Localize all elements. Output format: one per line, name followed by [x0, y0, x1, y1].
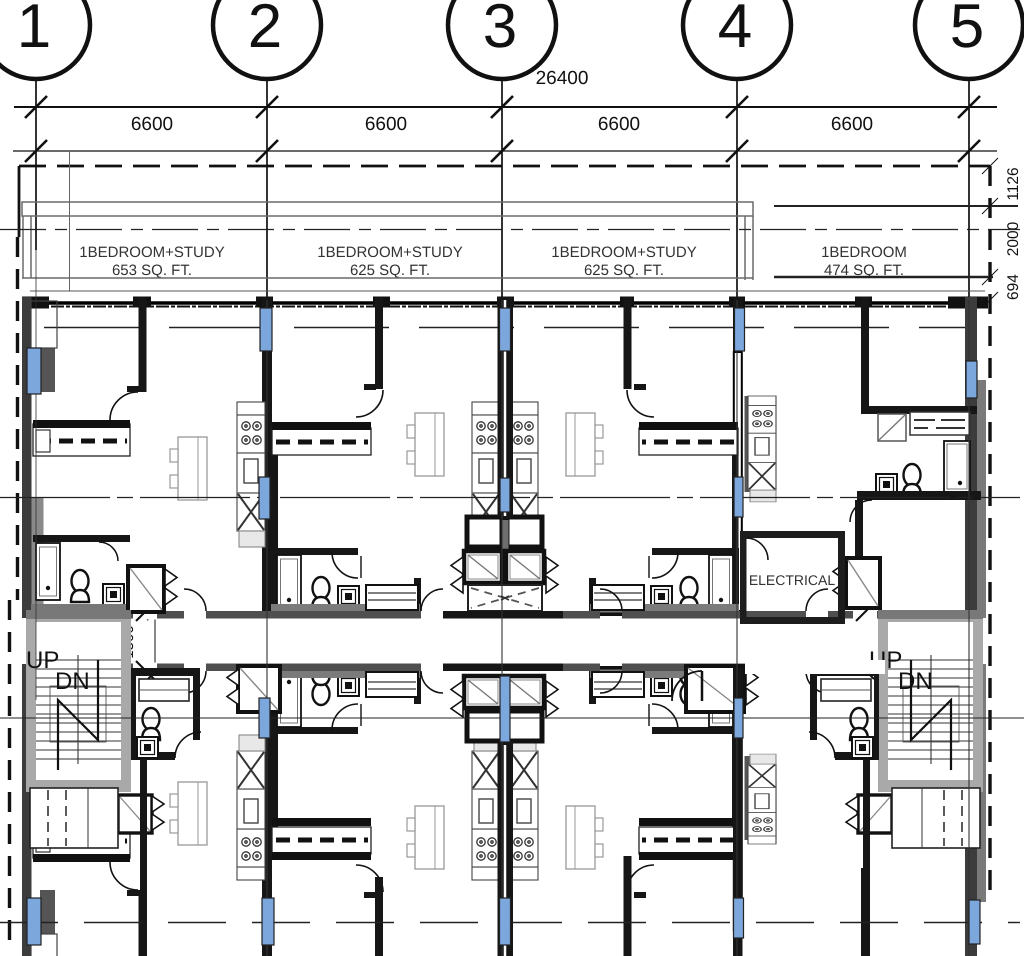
svg-text:625 SQ. FT.: 625 SQ. FT.: [584, 262, 664, 279]
svg-text:1: 1: [17, 0, 51, 61]
svg-text:1126: 1126: [1005, 167, 1022, 200]
svg-text:1BEDROOM: 1BEDROOM: [821, 244, 907, 261]
svg-text:3: 3: [483, 0, 517, 61]
svg-text:DN: DN: [898, 668, 933, 695]
svg-text:ELECTRICAL: ELECTRICAL: [749, 572, 836, 588]
svg-text:6600: 6600: [598, 114, 640, 135]
svg-text:1BEDROOM+STUDY: 1BEDROOM+STUDY: [317, 244, 462, 261]
svg-text:1BEDROOM+STUDY: 1BEDROOM+STUDY: [79, 244, 224, 261]
svg-text:2000: 2000: [1005, 221, 1022, 256]
svg-text:6600: 6600: [365, 114, 407, 135]
svg-text:653 SQ. FT.: 653 SQ. FT.: [112, 262, 192, 279]
svg-text:625 SQ. FT.: 625 SQ. FT.: [350, 262, 430, 279]
svg-text:5: 5: [950, 0, 984, 61]
svg-text:DN: DN: [55, 668, 90, 695]
svg-text:26400: 26400: [536, 68, 589, 89]
svg-text:1BEDROOM+STUDY: 1BEDROOM+STUDY: [551, 244, 696, 261]
svg-text:6600: 6600: [131, 114, 173, 135]
svg-text:2: 2: [248, 0, 282, 61]
svg-text:4: 4: [718, 0, 752, 61]
svg-text:694: 694: [1005, 274, 1022, 300]
svg-text:6600: 6600: [831, 114, 873, 135]
